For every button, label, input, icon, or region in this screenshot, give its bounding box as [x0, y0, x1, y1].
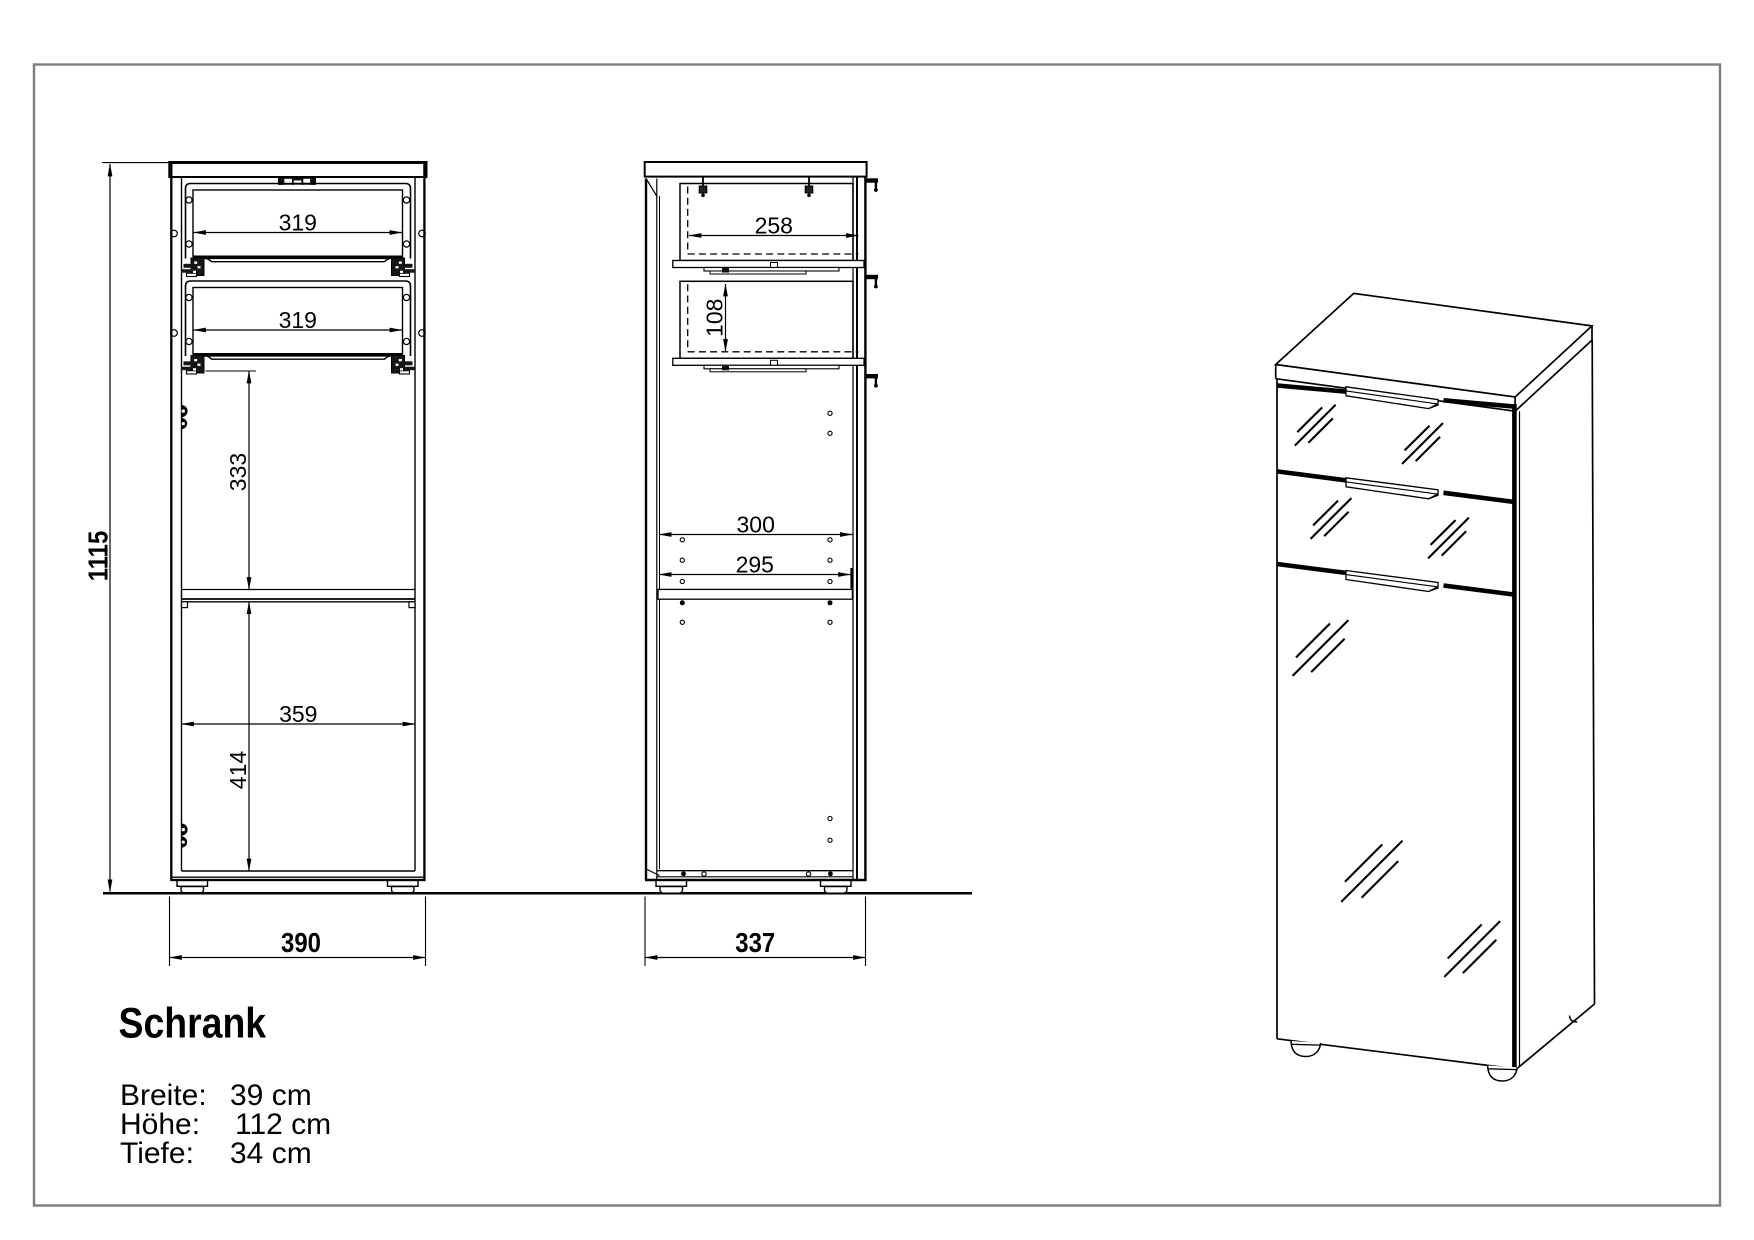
- svg-text:Breite:: Breite:: [120, 1079, 207, 1112]
- svg-text:337: 337: [735, 929, 775, 959]
- svg-text:333: 333: [225, 453, 251, 491]
- svg-text:295: 295: [736, 552, 774, 578]
- svg-text:39 cm: 39 cm: [230, 1079, 312, 1112]
- svg-text:414: 414: [225, 751, 251, 790]
- svg-text:108: 108: [702, 299, 728, 337]
- svg-text:1115: 1115: [84, 531, 114, 582]
- svg-text:319: 319: [279, 307, 317, 333]
- svg-text:319: 319: [279, 210, 317, 236]
- svg-text:258: 258: [755, 213, 793, 239]
- svg-text:34 cm: 34 cm: [230, 1137, 312, 1170]
- svg-text:Tiefe:: Tiefe:: [120, 1137, 194, 1170]
- svg-text:390: 390: [281, 929, 321, 959]
- svg-text:300: 300: [737, 512, 775, 538]
- svg-text:359: 359: [279, 701, 317, 727]
- svg-text:Schrank: Schrank: [119, 999, 267, 1047]
